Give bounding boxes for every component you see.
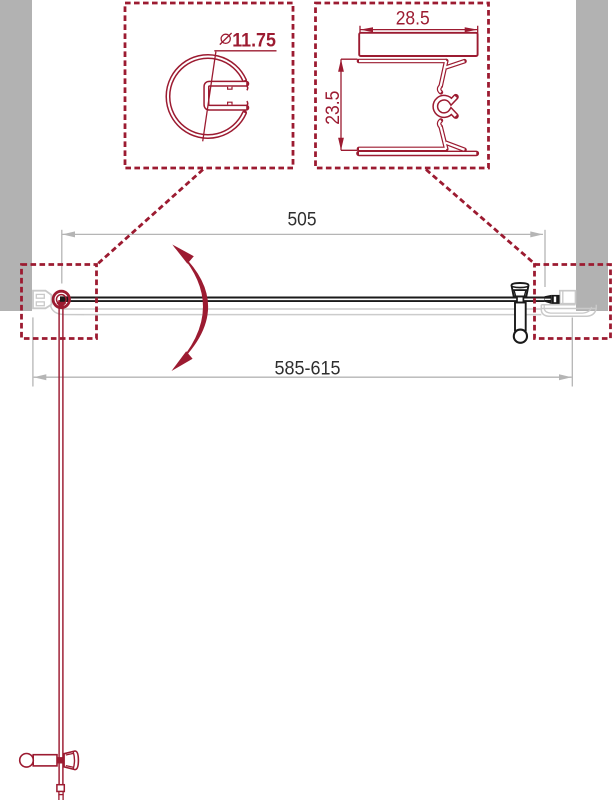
svg-text:23.5: 23.5: [323, 91, 344, 125]
svg-text:585-615: 585-615: [275, 358, 341, 379]
svg-text:11.75: 11.75: [232, 30, 276, 51]
svg-text:505: 505: [288, 210, 317, 231]
svg-text:28.5: 28.5: [396, 8, 430, 29]
